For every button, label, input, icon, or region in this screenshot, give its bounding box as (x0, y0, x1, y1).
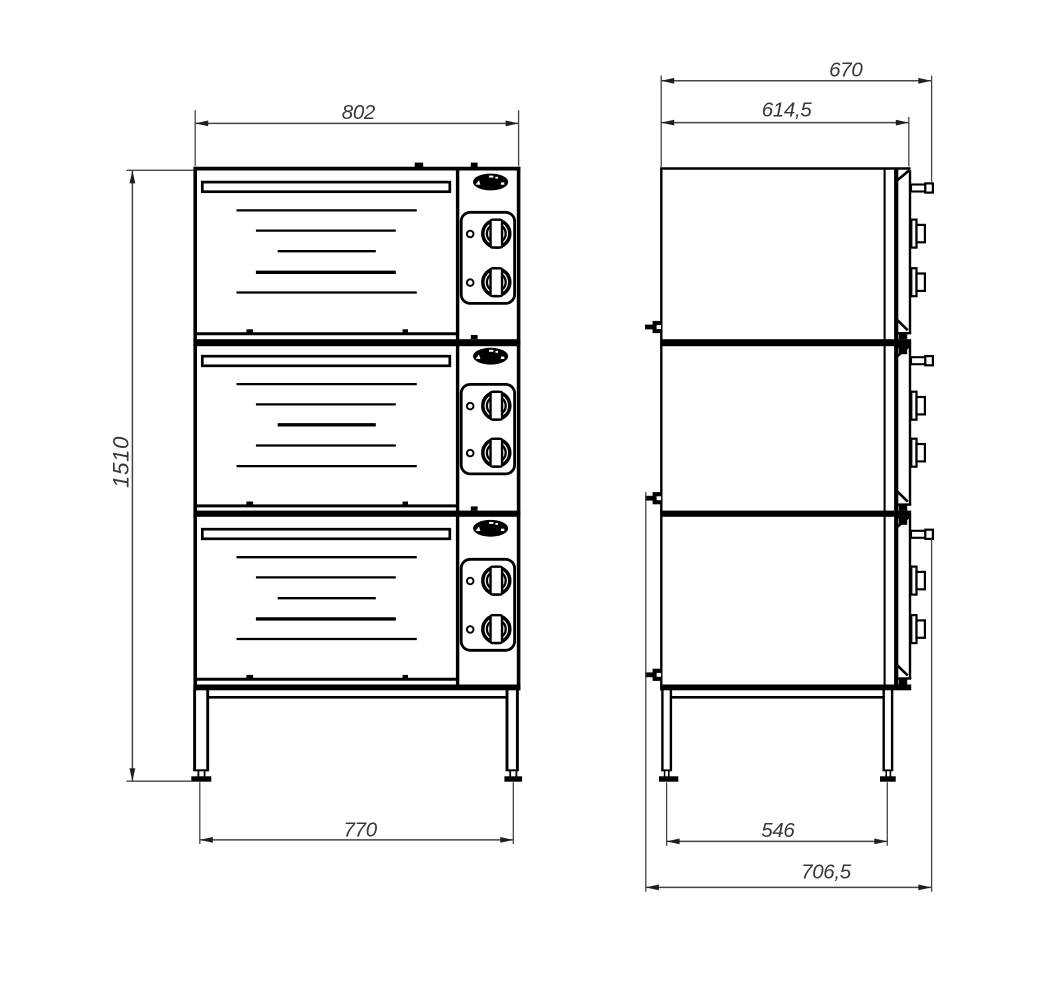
svg-text:614,5: 614,5 (762, 98, 813, 121)
svg-text:1510: 1510 (108, 436, 133, 488)
svg-text:706,5: 706,5 (801, 860, 852, 883)
svg-text:546: 546 (761, 819, 795, 842)
svg-text:670: 670 (829, 59, 863, 82)
svg-text:770: 770 (344, 819, 378, 842)
svg-text:802: 802 (342, 101, 376, 124)
